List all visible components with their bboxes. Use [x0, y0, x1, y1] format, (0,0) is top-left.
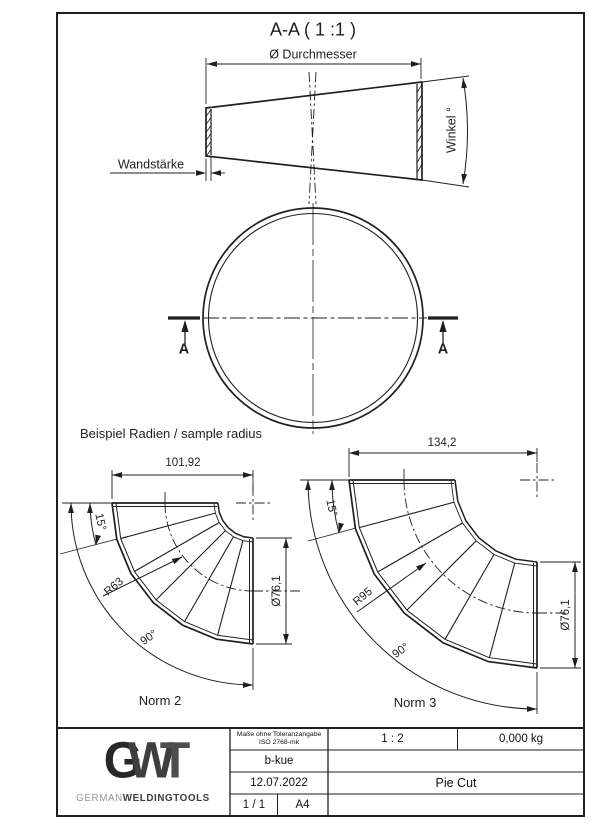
- company-name: GERMANWELDINGTOOLS: [58, 793, 228, 804]
- company-name-bold: WELDINGTOOLS: [123, 793, 210, 804]
- section-marker-right: A: [438, 342, 448, 357]
- drawing-linework: [0, 0, 600, 829]
- section-marker-left: A: [179, 342, 189, 357]
- paper-format-cell: A4: [278, 795, 327, 815]
- norm2-width-dimension: 101,92: [165, 457, 200, 469]
- norm3-width-dimension: 134,2: [428, 437, 457, 449]
- sheet-cell: 1 / 1: [231, 795, 277, 815]
- drawing-sheet: A-A ( 1 :1 ) Ø Durchmesser Wandstärke Wi…: [0, 0, 600, 829]
- sample-radius-heading: Beispiel Radien / sample radius: [80, 427, 262, 441]
- wall-thickness-label: Wandstärke: [118, 158, 184, 171]
- author-cell: b-kue: [231, 751, 327, 771]
- norm2-name: Norm 2: [139, 694, 182, 708]
- part-title-cell: Pie Cut: [329, 773, 583, 793]
- norm2-tube-diameter: Ø76,1: [271, 575, 283, 606]
- company-name-light: GERMAN: [76, 793, 123, 804]
- section-title: A-A ( 1 :1 ): [270, 21, 356, 40]
- logo-letter-t: T: [160, 730, 184, 789]
- norm3-tube-diameter: Ø76,1: [560, 599, 572, 630]
- company-logo: G W T: [57, 730, 230, 789]
- scale-cell: 1 : 2: [329, 729, 456, 749]
- norm3-name: Norm 3: [394, 696, 437, 710]
- weight-cell: 0,000 kg: [459, 729, 583, 749]
- tolerance-note: Maße ohne Toleranzangabe ISO 2768-mk: [231, 729, 327, 749]
- diameter-dimension-label: Ø Durchmesser: [269, 48, 357, 61]
- angle-dimension-label: Winkel °: [445, 107, 458, 153]
- date-cell: 12.07.2022: [231, 773, 327, 793]
